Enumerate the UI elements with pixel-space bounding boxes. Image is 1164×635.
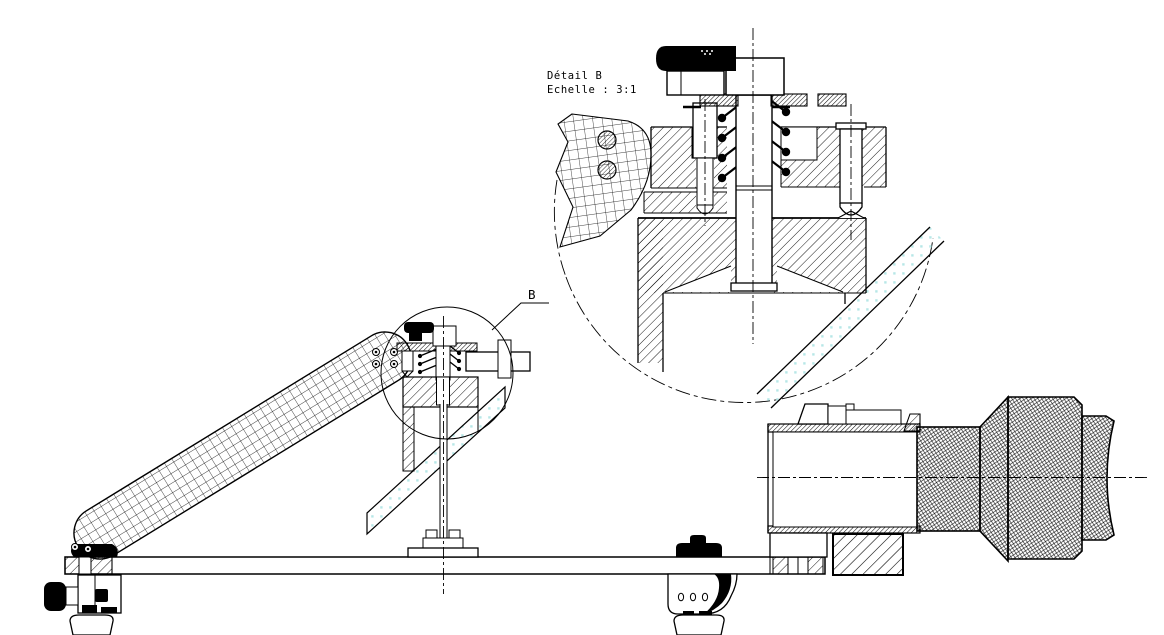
center-foot-pad bbox=[674, 615, 724, 635]
base-plate bbox=[65, 557, 825, 574]
support-arm bbox=[71, 332, 411, 559]
left-foot-pad bbox=[70, 615, 113, 635]
knurl-cone bbox=[980, 397, 1008, 561]
mirror-post bbox=[498, 340, 511, 378]
main-view: B bbox=[44, 287, 825, 635]
support-block-hatched bbox=[833, 534, 903, 575]
clamp-knob-assembly bbox=[656, 46, 784, 95]
clamp-knob bbox=[656, 46, 736, 71]
pin-hole-section bbox=[598, 161, 616, 179]
detail-title: Détail B bbox=[547, 70, 602, 82]
cad-drawing-canvas: B bbox=[0, 0, 1164, 635]
cad-drawing: B bbox=[0, 0, 1164, 635]
clamp-mechanism bbox=[397, 322, 530, 471]
mirror bbox=[367, 387, 505, 534]
wing-knob bbox=[676, 535, 722, 557]
detail-b-marker: B bbox=[528, 287, 536, 302]
center-foot-assembly bbox=[668, 535, 737, 635]
spindle-tube bbox=[768, 424, 920, 533]
left-foot-assembly bbox=[44, 575, 121, 635]
detail-scale: Echelle : 3:1 bbox=[547, 84, 637, 96]
arm-section-blob bbox=[556, 114, 651, 247]
left-foot-knob bbox=[44, 582, 66, 611]
detail-caption: Détail B Echelle : 3:1 bbox=[547, 70, 637, 96]
knurled-handle bbox=[917, 397, 1114, 561]
left-guide-pin bbox=[693, 99, 717, 226]
pin-hole-section bbox=[598, 131, 616, 149]
detail-boundary-arc-left bbox=[554, 180, 566, 277]
clamp-knob-small bbox=[404, 322, 434, 333]
knurl-neck bbox=[917, 427, 980, 531]
spindle-view bbox=[757, 397, 1147, 575]
knurl-end-cap bbox=[1082, 416, 1114, 540]
clamp-screw-shaft bbox=[731, 95, 777, 291]
knurl-grip bbox=[1008, 397, 1082, 559]
detail-leader-line bbox=[492, 303, 549, 330]
